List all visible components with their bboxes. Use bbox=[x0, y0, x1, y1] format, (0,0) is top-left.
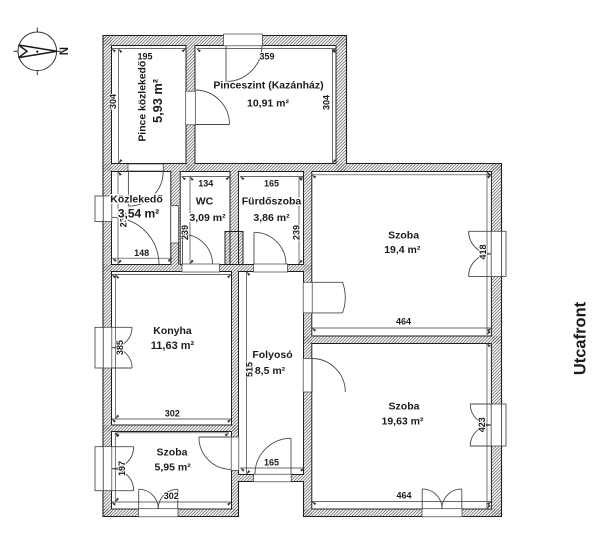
svg-text:515: 515 bbox=[244, 362, 254, 377]
svg-text:WC: WC bbox=[196, 196, 214, 208]
svg-text:3,54 m²: 3,54 m² bbox=[118, 207, 159, 221]
svg-text:464: 464 bbox=[396, 317, 411, 327]
svg-text:423: 423 bbox=[477, 417, 487, 432]
svg-text:304: 304 bbox=[108, 94, 118, 109]
svg-text:197: 197 bbox=[117, 461, 127, 476]
svg-text:8,5 m²: 8,5 m² bbox=[255, 365, 286, 377]
svg-text:Fürdőszoba: Fürdőszoba bbox=[242, 196, 302, 208]
svg-text:Utcafront: Utcafront bbox=[572, 301, 590, 375]
svg-text:Szoba: Szoba bbox=[388, 230, 419, 242]
svg-text:Szoba: Szoba bbox=[389, 401, 420, 413]
svg-text:165: 165 bbox=[264, 179, 279, 189]
svg-text:464: 464 bbox=[396, 490, 411, 500]
svg-text:Pinceszint (Kazánház): Pinceszint (Kazánház) bbox=[213, 80, 323, 92]
svg-text:Konyha: Konyha bbox=[153, 325, 192, 337]
svg-text:165: 165 bbox=[264, 457, 279, 467]
svg-text:Közlekedő: Közlekedő bbox=[110, 194, 163, 206]
svg-text:418: 418 bbox=[478, 244, 488, 259]
svg-text:19,4 m²: 19,4 m² bbox=[384, 244, 421, 256]
svg-text:10,91 m²: 10,91 m² bbox=[247, 97, 290, 109]
svg-text:3,09 m²: 3,09 m² bbox=[189, 212, 226, 224]
svg-text:302: 302 bbox=[164, 491, 179, 501]
svg-text:302: 302 bbox=[165, 409, 180, 419]
svg-text:19,63 m²: 19,63 m² bbox=[381, 416, 424, 428]
svg-text:359: 359 bbox=[259, 52, 274, 62]
svg-text:239: 239 bbox=[180, 225, 190, 240]
svg-text:Pince közlekedő: Pince közlekedő bbox=[137, 61, 148, 142]
svg-text:239: 239 bbox=[292, 225, 302, 240]
svg-text:N: N bbox=[56, 47, 68, 55]
svg-text:148: 148 bbox=[134, 248, 149, 258]
svg-text:304: 304 bbox=[322, 95, 332, 110]
svg-text:Folyosó: Folyosó bbox=[252, 349, 292, 361]
svg-text:11,63 m²: 11,63 m² bbox=[151, 340, 195, 352]
svg-text:134: 134 bbox=[198, 179, 213, 189]
svg-text:3,86 m²: 3,86 m² bbox=[253, 212, 290, 224]
svg-text:195: 195 bbox=[137, 52, 152, 62]
svg-text:5,93 m²: 5,93 m² bbox=[150, 79, 165, 123]
svg-text:Szoba: Szoba bbox=[157, 447, 188, 459]
svg-text:385: 385 bbox=[115, 340, 125, 355]
svg-text:5,95 m²: 5,95 m² bbox=[155, 461, 192, 473]
